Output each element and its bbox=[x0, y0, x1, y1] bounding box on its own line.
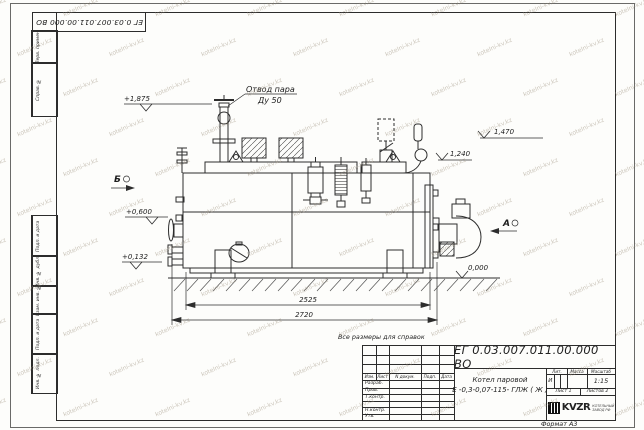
elevation-1240: 1,240 bbox=[450, 150, 471, 158]
safety-valve-phantom-box bbox=[378, 119, 394, 141]
dimension-2720: 2720 bbox=[295, 311, 313, 319]
row-razrab: Разраб. bbox=[363, 381, 383, 386]
drawing-sheet: Перв. примен. Справ. № Подп. и дата Инв.… bbox=[0, 0, 644, 430]
title-block: Изм. Лист N докум. Подп. Дата Разраб. Пр… bbox=[362, 345, 616, 421]
mass-label: Масса bbox=[567, 368, 587, 374]
elevation-0132: +0,132 bbox=[122, 253, 148, 261]
boiler-body bbox=[183, 162, 430, 278]
elevation-marks bbox=[122, 104, 543, 278]
lit-value: И bbox=[547, 374, 554, 388]
ground bbox=[168, 278, 500, 291]
steam-outlet-label-line1: Отвод пара bbox=[246, 85, 295, 94]
row-tkontr: Т.контр. bbox=[363, 395, 385, 400]
format-label: Формат А3 bbox=[541, 420, 577, 428]
product-name-cell: Котел паровой Е -0,3-0,07-115- ГЛЖ ( Ж ) bbox=[454, 368, 547, 420]
sheets-cell: Листов 2 bbox=[580, 388, 615, 395]
company-name-line2: ЗАВОД РФ bbox=[592, 408, 614, 412]
kvzr-logo-icon bbox=[548, 402, 560, 414]
col-podp: Подп. bbox=[421, 373, 439, 380]
kvzr-logo-text: KVZR bbox=[562, 402, 590, 413]
scale-value: 1:15 bbox=[587, 374, 615, 388]
view-label-a: А bbox=[502, 219, 510, 229]
top-equipment bbox=[229, 119, 427, 173]
product-name-line1: Котел паровой bbox=[473, 375, 528, 385]
col-izm: Изм. bbox=[363, 373, 376, 380]
row-prov: Пров. bbox=[363, 388, 378, 393]
row-nkontr: Н.контр. bbox=[363, 408, 386, 413]
reference-note: Все размеры для справок bbox=[338, 333, 425, 341]
steam-outlet-valve bbox=[213, 95, 235, 162]
dimension-2525: 2525 bbox=[299, 296, 317, 304]
level-gauges bbox=[303, 157, 371, 207]
view-label-b: Б bbox=[114, 175, 121, 185]
burner-assembly bbox=[425, 185, 481, 268]
elevation-0000: 0,000 bbox=[468, 264, 489, 272]
steam-outlet-callout: Отвод пара Ду 50 bbox=[228, 85, 297, 106]
company-cell: KVZR КОТЕЛЬНЫЙ ЗАВОД РФ bbox=[547, 395, 615, 420]
col-list: Лист bbox=[376, 373, 389, 380]
elevation-1875: +1,875 bbox=[124, 95, 150, 103]
row-utv: Утв. bbox=[363, 414, 375, 419]
steam-outlet-label-line2: Ду 50 bbox=[257, 96, 282, 105]
doc-number: ЕГ 0.03.007.011.00.000 ВО bbox=[454, 346, 615, 369]
title-block-right: Лит. Масса Масштаб И 1:15 Лист 1 Листов … bbox=[547, 368, 615, 420]
col-ndoc: N докум. bbox=[389, 373, 421, 380]
product-name-line2: Е -0,3-0,07-115- ГЛЖ ( Ж ) bbox=[452, 385, 547, 395]
elevation-0600: +0,600 bbox=[126, 208, 152, 216]
left-fittings bbox=[168, 148, 187, 266]
col-data: Дата bbox=[439, 373, 454, 380]
elevation-1470: 1,470 bbox=[494, 128, 515, 136]
sheet-cell: Лист 1 bbox=[547, 388, 580, 395]
